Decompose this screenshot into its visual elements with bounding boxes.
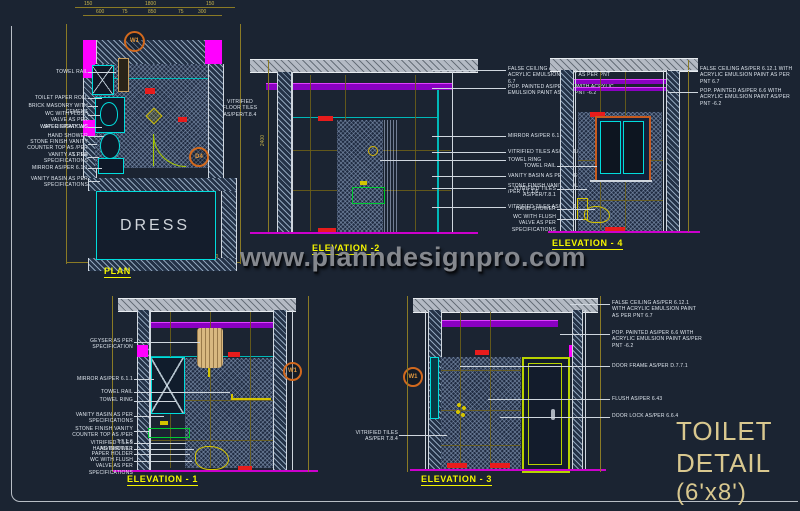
plan-red-marker (178, 117, 187, 122)
e1-label: TOWEL RAIL (73, 389, 133, 395)
e1-vanity-counter (148, 428, 190, 438)
leader-line (432, 176, 506, 177)
e1-label: WC WITH FLUSH VALVE AS PER SPECIFICATION… (73, 457, 133, 476)
leader-line (88, 106, 98, 107)
e3-cornice-band (438, 320, 558, 327)
dim-line (75, 7, 235, 8)
leader-line (134, 392, 230, 393)
dim-text: 850 (148, 9, 156, 15)
plan-dress-wall-top (88, 178, 237, 191)
dim-text: 150 (84, 1, 92, 7)
cad-sheet: 150 1800 150 600 75 850 75 300 150 1800 … (0, 0, 800, 511)
leader-line (134, 454, 190, 455)
e4-label: POP. PAINTED AS/PER 6.6 WITH ACRYLIC EMU… (700, 88, 796, 107)
e1-label: VANITY BASIN AS PER SPECIFICATIONS (73, 412, 133, 425)
grid-line (578, 200, 663, 201)
leader-line (134, 443, 186, 444)
grid-line (415, 75, 416, 231)
e1-label: GEYSER AS PER SPECIFICATION (73, 338, 133, 351)
e4-wall-section-left (560, 70, 574, 232)
e4-label: VITRIFIED TILES AS/PER/T.8.1 (488, 186, 556, 199)
title-block-line1: TOILET (676, 416, 773, 447)
dim-line (83, 15, 222, 16)
grid-line (441, 410, 521, 411)
e1-towel-rail (231, 398, 271, 400)
dim-text: 2400 (260, 135, 266, 146)
leader-line (557, 166, 597, 167)
leader-line (460, 366, 610, 367)
plan-mirror (92, 65, 114, 95)
grid-line (441, 445, 521, 446)
dim-text: 1800 (145, 1, 156, 7)
e3-floor-line (410, 469, 606, 471)
leader-line (88, 136, 104, 137)
e4-wall-line (663, 70, 664, 232)
e4-window-sill (590, 180, 652, 182)
leader-line (488, 399, 610, 400)
e3-label: POP. PAINTED AS/PER 6.6 WITH ACRYLIC EMU… (612, 330, 704, 349)
leader-line (134, 379, 154, 380)
e3-tile-wall (441, 357, 521, 469)
leader-line (432, 70, 506, 71)
e1-label: TOWEL RING (73, 397, 133, 403)
e2-vanity-counter (352, 187, 385, 204)
e4-label: TOWEL RAIL (496, 163, 556, 169)
leader-line (88, 115, 100, 116)
dress-room-label: DRESS (110, 216, 200, 236)
e4-wall-line (575, 70, 576, 232)
e1-window-tag-w1: W1 (283, 362, 302, 381)
leader-line (432, 136, 506, 137)
dim-text: 75 (178, 9, 184, 15)
e1-label: MIRROR AS/PER 6.1.1 (73, 376, 133, 382)
e3-skirting (447, 463, 467, 468)
dim-line (308, 296, 309, 472)
leader-line (88, 98, 102, 99)
e3-title: ELEVATION - 3 (421, 474, 492, 486)
leader-line (134, 449, 194, 450)
leader-line (668, 70, 698, 71)
e2-skirting (318, 228, 336, 232)
e3-wall-line (425, 310, 426, 470)
dim-text: 300 (198, 9, 206, 15)
plan-red-marker (145, 88, 155, 94)
e1-title: ELEVATION - 1 (127, 474, 198, 486)
e3-door-handle (551, 409, 555, 420)
dim-text: 75 (122, 9, 128, 15)
e1-red-marker (228, 352, 240, 357)
plan-wall-top (96, 40, 208, 64)
leader-line (88, 144, 97, 145)
leader-line (88, 168, 102, 169)
leader-line (557, 189, 587, 190)
e3-flower-dots (455, 402, 467, 418)
e1-wall-line (292, 310, 293, 470)
e2-red-marker (318, 116, 333, 121)
door-tag-d4: D4 (189, 147, 209, 167)
e2-wall-line (292, 72, 293, 233)
e1-basin-faucet (160, 421, 168, 425)
plan-door-leaf (153, 134, 154, 166)
e2-tile-wall (337, 120, 383, 232)
e1-wall-section-left (137, 310, 150, 470)
dim-line (268, 60, 269, 233)
watermark: www.planndesignpro.com (240, 242, 586, 273)
e1-mirror (151, 357, 185, 414)
grid-line (441, 370, 521, 371)
plan-label: WATER SPRAY WC (28, 124, 88, 130)
dim-text: 150 (206, 1, 214, 7)
e4-wall-section-right (666, 70, 680, 232)
plan-label: VANITY BASIN AS PER SPECIFICATIONS (28, 176, 88, 189)
e3-label: DOOR FRAME AS/PER D.7.7.1 (612, 363, 704, 369)
plan-wash-basin (100, 102, 118, 126)
window-tag-w1: W1 (124, 31, 145, 52)
e3-label: VITRIFIED TILES AS/PER T.8.4 (338, 430, 398, 443)
leader-line (668, 92, 698, 93)
leader-line (88, 127, 102, 128)
leader-line (134, 342, 200, 343)
leader-line (557, 209, 595, 210)
plan-label: VANITY AS PER SPECIFICATIONS (28, 152, 88, 165)
dim-text: 600 (96, 9, 104, 15)
title-block-line3: (6'x8') (676, 479, 747, 507)
dim-line (600, 296, 601, 472)
e1-towel-rail-end (231, 394, 233, 400)
e1-skirting (238, 466, 252, 470)
e1-geyser (197, 328, 223, 368)
grid-line (151, 440, 273, 441)
leader-line (134, 416, 164, 417)
e1-magenta-block (137, 345, 148, 357)
e3-glass-strip (430, 357, 439, 419)
leader-line (134, 431, 150, 432)
plan-dress-wall-right (221, 191, 237, 258)
leader-line (560, 334, 610, 335)
leader-line (88, 157, 99, 158)
plan-shower-partition (118, 58, 129, 92)
title-block-line2: DETAIL (676, 448, 771, 479)
e3-label: FLUSH AS/PER 6.43 (612, 396, 704, 402)
e4-label: HAND SHOWER (496, 206, 556, 212)
leader-line (134, 461, 192, 462)
dim-line (240, 24, 241, 264)
e2-wall-section-left (277, 72, 292, 233)
plan-label: MIRROR AS/PER 6.1.1 (28, 165, 88, 171)
leader-line (380, 160, 506, 161)
e2-side-return (384, 120, 398, 232)
e4-skirting (605, 227, 625, 231)
e4-floor-line (548, 231, 700, 233)
e2-wall-edge (437, 90, 439, 232)
dim-line (688, 60, 689, 232)
e2-towel-ring (368, 146, 378, 156)
leader-line (570, 304, 610, 305)
grid-line (310, 75, 311, 231)
plan-title: PLAN (104, 266, 131, 278)
e2-basin-faucet (360, 181, 367, 185)
e3-red-marker (475, 350, 489, 355)
e3-window-tag-w1: W1 (403, 367, 423, 387)
grid-line (250, 312, 251, 468)
plan-label: TOWEL RAIL (28, 69, 88, 75)
e3-skirting (490, 463, 510, 468)
leader-line (432, 88, 506, 89)
plan-wall-right (208, 64, 224, 178)
e2-floor-line (250, 232, 478, 234)
leader-line (134, 401, 176, 402)
e1-floor-line (112, 470, 318, 472)
e4-label: FALSE CEILING AS/PER 6.12.1 WITH ACRYLIC… (700, 66, 796, 85)
dim-line (407, 296, 408, 472)
leader-line (557, 219, 583, 220)
e2-cornice-band (266, 83, 452, 90)
e1-geyser-pipe (208, 368, 210, 377)
e3-label: FALSE CEILING AS/PER 6.12.1 WITH ACRYLIC… (612, 300, 704, 319)
plan-floor-label: VITRIFIED FLOOR TILES AS/PER/T.8.4 (222, 99, 258, 118)
e4-window-pane-right (623, 121, 644, 174)
plan-magenta-wall (205, 40, 222, 64)
e3-door-panel (528, 363, 562, 465)
leader-line (432, 207, 506, 208)
leader-line (399, 435, 447, 436)
leader-line (88, 181, 100, 182)
leader-line (88, 72, 116, 73)
plan-label: TOILET PAPER ROLL (28, 95, 88, 101)
e4-window-pane-left (600, 121, 621, 174)
leader-line (500, 417, 610, 418)
e1-wc (195, 446, 229, 470)
e1-wall-section-right (273, 310, 287, 470)
plan-wc-cistern (98, 158, 124, 174)
leader-line (432, 152, 506, 153)
e4-label: WC WITH FLUSH VALVE AS PER SPECIFICATION… (496, 214, 556, 233)
